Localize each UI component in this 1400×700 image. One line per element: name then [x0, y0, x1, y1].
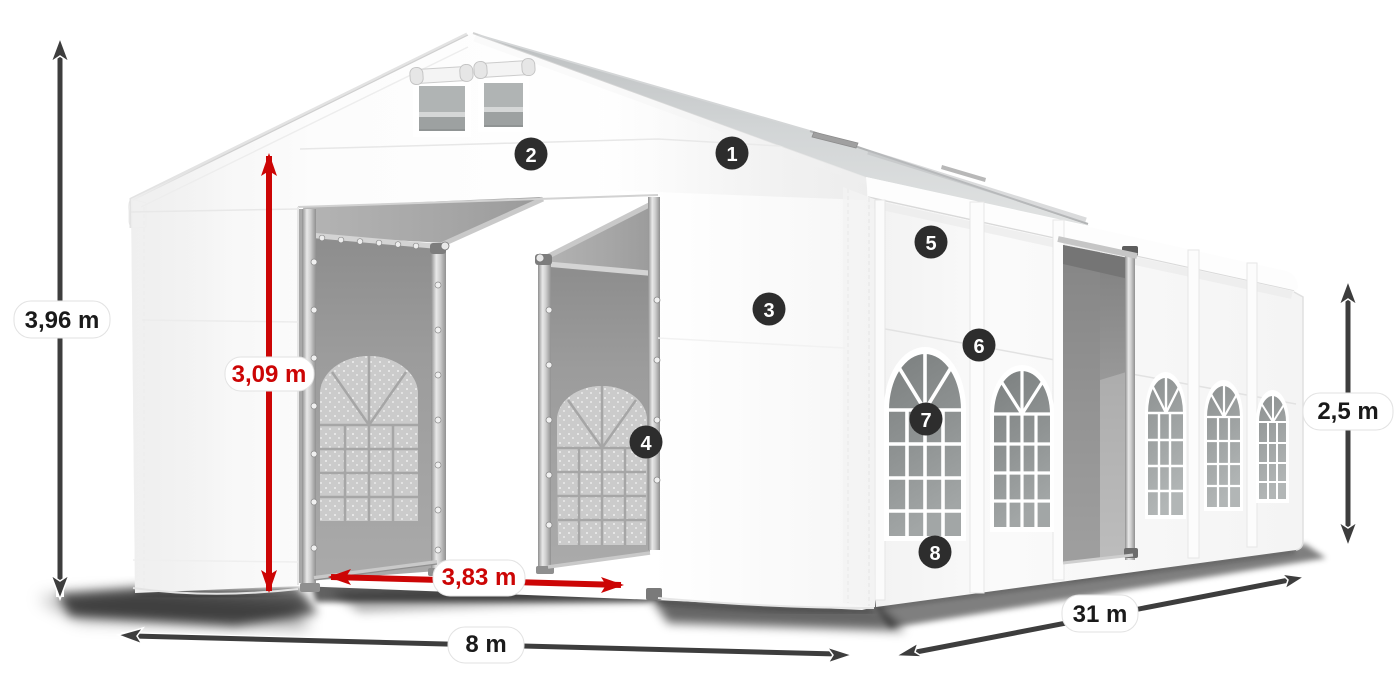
- svg-text:2: 2: [525, 145, 536, 167]
- svg-text:31 m: 31 m: [1073, 601, 1128, 628]
- svg-text:8 m: 8 m: [465, 631, 506, 658]
- svg-text:3,96 m: 3,96 m: [25, 307, 100, 334]
- svg-text:2,5 m: 2,5 m: [1317, 398, 1378, 425]
- svg-text:7: 7: [920, 410, 931, 432]
- svg-text:5: 5: [925, 233, 936, 255]
- svg-text:8: 8: [929, 543, 940, 565]
- svg-text:3,09 m: 3,09 m: [232, 361, 307, 388]
- svg-text:4: 4: [640, 433, 652, 455]
- svg-text:6: 6: [973, 336, 984, 358]
- svg-text:3,83 m: 3,83 m: [442, 564, 517, 591]
- svg-text:3: 3: [763, 300, 774, 322]
- svg-text:1: 1: [726, 144, 737, 166]
